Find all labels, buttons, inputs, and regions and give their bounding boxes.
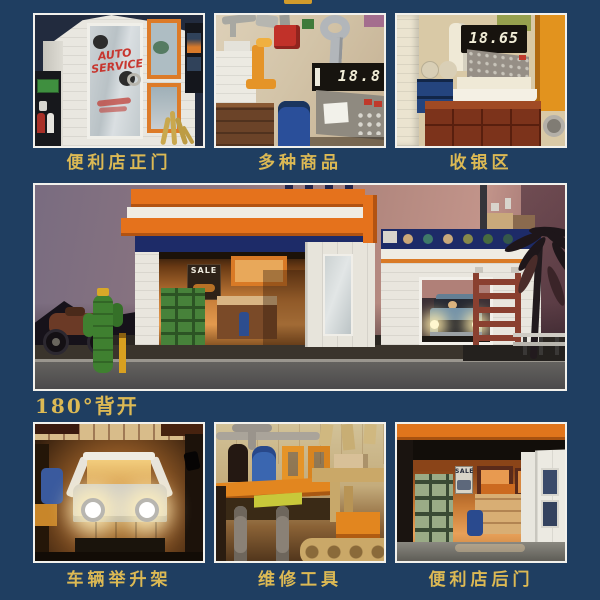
- roof-stripe-top: [131, 189, 365, 207]
- window-reflection: [153, 41, 169, 54]
- register-red-key: [519, 55, 526, 60]
- white-box-stack: [216, 51, 256, 103]
- floor-light-streak: [455, 544, 525, 552]
- counter-brown: [425, 101, 541, 146]
- goods-scene: 18.8: [216, 15, 384, 146]
- caption-various-goods: 多种商品: [214, 151, 386, 175]
- auto-service-sign: AUTO SERVICE: [89, 46, 143, 84]
- opening-floor: [422, 336, 490, 345]
- car-headlamp: [81, 498, 105, 522]
- vending-sign: [37, 79, 59, 93]
- green-goods: [302, 19, 314, 29]
- roof-vent: [491, 203, 499, 211]
- red-part: [274, 25, 300, 49]
- photo-cashier-area: 18.65: [395, 13, 567, 148]
- bottle-red: [37, 113, 45, 133]
- garage-porthole: [463, 234, 473, 244]
- pink-goods: [364, 15, 384, 27]
- poster-small: [187, 33, 201, 53]
- wood-shelf: [216, 103, 274, 146]
- blue-bottle: [239, 312, 249, 336]
- garage-opening: [419, 277, 493, 345]
- blue-tub: [278, 101, 310, 146]
- orange-clamp-foot: [246, 79, 276, 89]
- hanging-tool: [222, 15, 257, 25]
- motorcycle-seat: [65, 307, 85, 316]
- mechanic-figure: [41, 468, 63, 504]
- wheel-hub: [52, 338, 60, 346]
- orange-corner-column: [363, 195, 377, 243]
- caption-cashier-area: 收银区: [395, 151, 567, 175]
- road: [35, 362, 565, 389]
- bench-leg: [276, 506, 289, 561]
- scale-display-value: 18.8: [320, 67, 382, 87]
- roofline-orange-band: [397, 424, 565, 440]
- interior-right-shade: [263, 270, 305, 345]
- repair-tools-scene: [216, 424, 384, 561]
- door-glass-pane: [541, 468, 559, 496]
- store-interior: SALE: [159, 252, 305, 345]
- cream-cylinders: [421, 61, 439, 79]
- hanging-tan-tool: [363, 424, 376, 444]
- cactus-body: [93, 295, 113, 373]
- car-grille: [438, 320, 474, 332]
- green-cabinet: [415, 474, 453, 544]
- register-tray: [451, 89, 537, 101]
- floor-shadow: [310, 137, 384, 146]
- sale-sign-text: SALE: [187, 266, 221, 276]
- keypad-red-button: [374, 101, 382, 107]
- roof-stripe-bottom: [121, 218, 373, 236]
- register-display-value: 18.65: [465, 29, 523, 49]
- photo-vehicle-lift: [33, 422, 205, 563]
- garage-porthole: [423, 234, 433, 244]
- orange-crate: [35, 504, 57, 526]
- hanging-tan-tool: [341, 424, 356, 451]
- keypad-red-button: [364, 99, 372, 105]
- bench-leg: [234, 506, 247, 561]
- wheel: [543, 115, 565, 137]
- floor-dark: [35, 552, 203, 561]
- photo-store-back-door: SALE: [395, 422, 567, 563]
- clamp-knob: [256, 38, 272, 47]
- guardrail-rail: [513, 342, 565, 346]
- yellow-bollard: [119, 333, 126, 373]
- base-dark-block: [463, 345, 565, 361]
- caption-180-open: 180°背开: [35, 394, 139, 418]
- poster-smudge: [457, 480, 471, 490]
- bottle-small: [39, 101, 47, 111]
- caption-store-front-door: 便利店正门: [33, 151, 205, 175]
- cream-pillar: [397, 15, 419, 146]
- opened-wall-glass: [323, 254, 353, 336]
- car-bumper-cylinder: [77, 522, 163, 538]
- cross-valve-tool: [248, 424, 256, 450]
- green-cabinet: [161, 288, 205, 345]
- section-divider-bar: [284, 0, 312, 4]
- product-detail-collage: AUTO SERVICE 便利店正门: [0, 0, 600, 600]
- car-headlamp: [135, 498, 159, 522]
- orange-cabinet: [535, 15, 565, 111]
- caption-store-back-door: 便利店后门: [395, 568, 567, 592]
- pipe-horizontal: [216, 432, 320, 440]
- engine-frame-bar: [83, 452, 155, 460]
- roof-white-band: [127, 207, 369, 218]
- garage-porthole: [403, 234, 413, 244]
- orange-frame-part: [282, 446, 304, 482]
- dark-bottle: [228, 444, 248, 482]
- photo-store-front-door: AUTO SERVICE: [33, 13, 205, 148]
- roof-pipe: [480, 185, 487, 231]
- bench-shelf-right: [312, 468, 384, 482]
- sale-poster-text: SALE: [455, 468, 473, 475]
- photo-180-open: SALE: [33, 183, 567, 391]
- door-glass-pane: [541, 500, 559, 528]
- tire-decor: [93, 35, 108, 49]
- ladder-rung: [473, 279, 521, 285]
- open-building-scene: SALE: [35, 185, 565, 389]
- cashier-scene: 18.65: [397, 15, 565, 146]
- cactus-top-stud: [97, 288, 109, 296]
- caption-repair-tools: 维修工具: [214, 568, 386, 592]
- hanging-tool: [230, 21, 236, 37]
- garage-band-block: [383, 231, 397, 243]
- left-dark-margin: [216, 486, 226, 561]
- photo-various-goods: 18.8: [214, 13, 386, 148]
- vehicle-lift-scene: [35, 424, 203, 561]
- door-frame: [521, 452, 535, 550]
- photo-repair-tools: [214, 422, 386, 563]
- store-left-column: [135, 252, 159, 345]
- tread-belt: [300, 538, 384, 561]
- car-headlight: [430, 320, 439, 329]
- garage-porthole: [443, 234, 453, 244]
- back-door-scene: SALE: [397, 424, 565, 561]
- blue-figure: [467, 510, 483, 536]
- bottle-white: [47, 113, 54, 133]
- storefront-scene: AUTO SERVICE: [35, 15, 203, 146]
- roof-vent: [505, 198, 511, 209]
- keypad-screen: [323, 102, 348, 124]
- blue-bottle: [252, 446, 276, 484]
- guardrail-rail: [513, 333, 565, 337]
- caption-vehicle-lift: 车辆举升架: [33, 568, 205, 592]
- poster-small: [187, 57, 201, 71]
- ceiling-beam: [35, 424, 79, 434]
- garage-white-band: [381, 249, 541, 259]
- keypad-buttons: [356, 111, 382, 135]
- garage-porthole: [483, 234, 493, 244]
